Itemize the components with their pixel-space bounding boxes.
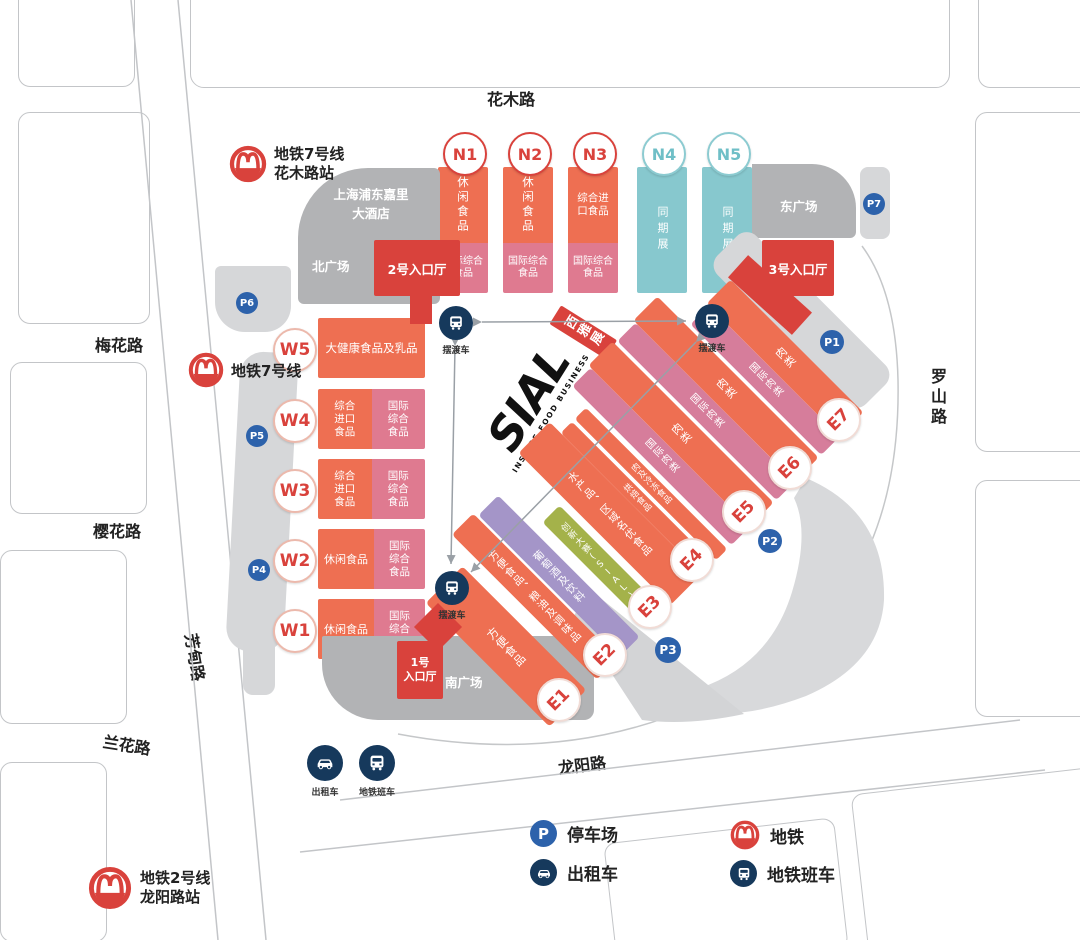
legend: P 停车场 出租车 bbox=[530, 820, 618, 886]
legend-item-metro: 地铁 bbox=[730, 820, 835, 850]
hall-badge-n3: N3 bbox=[573, 132, 617, 176]
entrance-2-hall: 2号入口厅 bbox=[374, 240, 460, 296]
legend-label: 地铁班车 bbox=[767, 861, 835, 886]
hall-badge-n2: N2 bbox=[508, 132, 552, 176]
legend-item-taxi: 出租车 bbox=[530, 859, 618, 886]
bus-icon bbox=[735, 865, 753, 883]
shuttle-legend-icon bbox=[730, 860, 757, 887]
taxi-stop-label: 出租车 bbox=[311, 785, 338, 798]
metro-line7-huamu-station: 地铁7号线花木路站 bbox=[229, 145, 344, 183]
bus-icon bbox=[446, 313, 466, 333]
hall-badge-e4: E4 bbox=[670, 538, 714, 582]
metro-icon bbox=[730, 820, 760, 850]
legend-item-metro-shuttle: 地铁班车 bbox=[730, 860, 835, 887]
metro-line2-longyang-station: 地铁2号线龙阳路站 bbox=[88, 866, 210, 910]
entrance-3-hall: 3号入口厅 bbox=[762, 240, 834, 296]
shuttle-bus-stop-icon bbox=[435, 571, 469, 605]
car-icon bbox=[535, 864, 553, 882]
hall-badge-e6: E6 bbox=[768, 446, 812, 490]
hall-badge-e5: E5 bbox=[722, 490, 766, 534]
shuttle-bus-stop-icon bbox=[439, 306, 473, 340]
hall-badge-e3: E3 bbox=[628, 585, 672, 629]
hall-badge-w4: W4 bbox=[273, 399, 317, 443]
parking-badge-p5: P5 bbox=[246, 425, 268, 447]
hall-badge-e1: E1 bbox=[537, 678, 581, 722]
bus-icon bbox=[702, 311, 722, 331]
legend-label: 出租车 bbox=[567, 860, 618, 885]
legend-right: 地铁 地铁班车 bbox=[730, 820, 835, 887]
hall-badge-w2: W2 bbox=[273, 539, 317, 583]
hall-badge-e2: E2 bbox=[583, 633, 627, 677]
parking-badge-p4: P4 bbox=[248, 559, 270, 581]
parking-badge-p7: P7 bbox=[863, 193, 885, 215]
venue-map: 花木路 梅花路 樱花路 芳甸路 兰花路 罗山路 龙阳路 上海浦东嘉里大酒店 北广… bbox=[0, 0, 1080, 940]
hall-badge-n4: N4 bbox=[642, 132, 686, 176]
bus-icon bbox=[442, 578, 462, 598]
hall-badge-n1: N1 bbox=[443, 132, 487, 176]
parking-legend-icon: P bbox=[530, 820, 557, 847]
taxi-legend-icon bbox=[530, 859, 557, 886]
hall-badge-w1: W1 bbox=[273, 609, 317, 653]
hall-badge-w3: W3 bbox=[273, 469, 317, 513]
parking-badge-p1: P1 bbox=[820, 330, 844, 354]
hall-badge-n5: N5 bbox=[707, 132, 751, 176]
entrance-2-stem bbox=[410, 296, 432, 324]
legend-label: 地铁 bbox=[770, 823, 804, 848]
shuttle-bus-stop-icon bbox=[695, 304, 729, 338]
metro-shuttle-stop-label: 地铁班车 bbox=[359, 785, 395, 798]
parking-badge-p3: P3 bbox=[655, 637, 681, 663]
shuttle-bus-stop-label: 摆渡车 bbox=[442, 343, 469, 356]
legend-label: 停车场 bbox=[567, 821, 618, 846]
entrance-1-hall: 1号入口厅 bbox=[397, 641, 443, 699]
shuttle-bus-stop-label: 摆渡车 bbox=[438, 608, 465, 621]
shuttle-bus-stop-label: 摆渡车 bbox=[698, 341, 725, 354]
parking-badge-p2: P2 bbox=[758, 529, 782, 553]
metro-icon bbox=[229, 145, 267, 183]
metro-line7-marker: 地铁7号线 bbox=[188, 352, 301, 388]
parking-badge-p6: P6 bbox=[236, 292, 258, 314]
metro-icon bbox=[88, 866, 132, 910]
hall-badge-e7: E7 bbox=[817, 398, 861, 442]
legend-item-parking: P 停车场 bbox=[530, 820, 618, 847]
metro-icon bbox=[188, 352, 224, 388]
bus-icon bbox=[366, 752, 388, 774]
metro-shuttle-stop-icon bbox=[359, 745, 395, 781]
taxi-stop-icon bbox=[307, 745, 343, 781]
car-icon bbox=[314, 752, 336, 774]
